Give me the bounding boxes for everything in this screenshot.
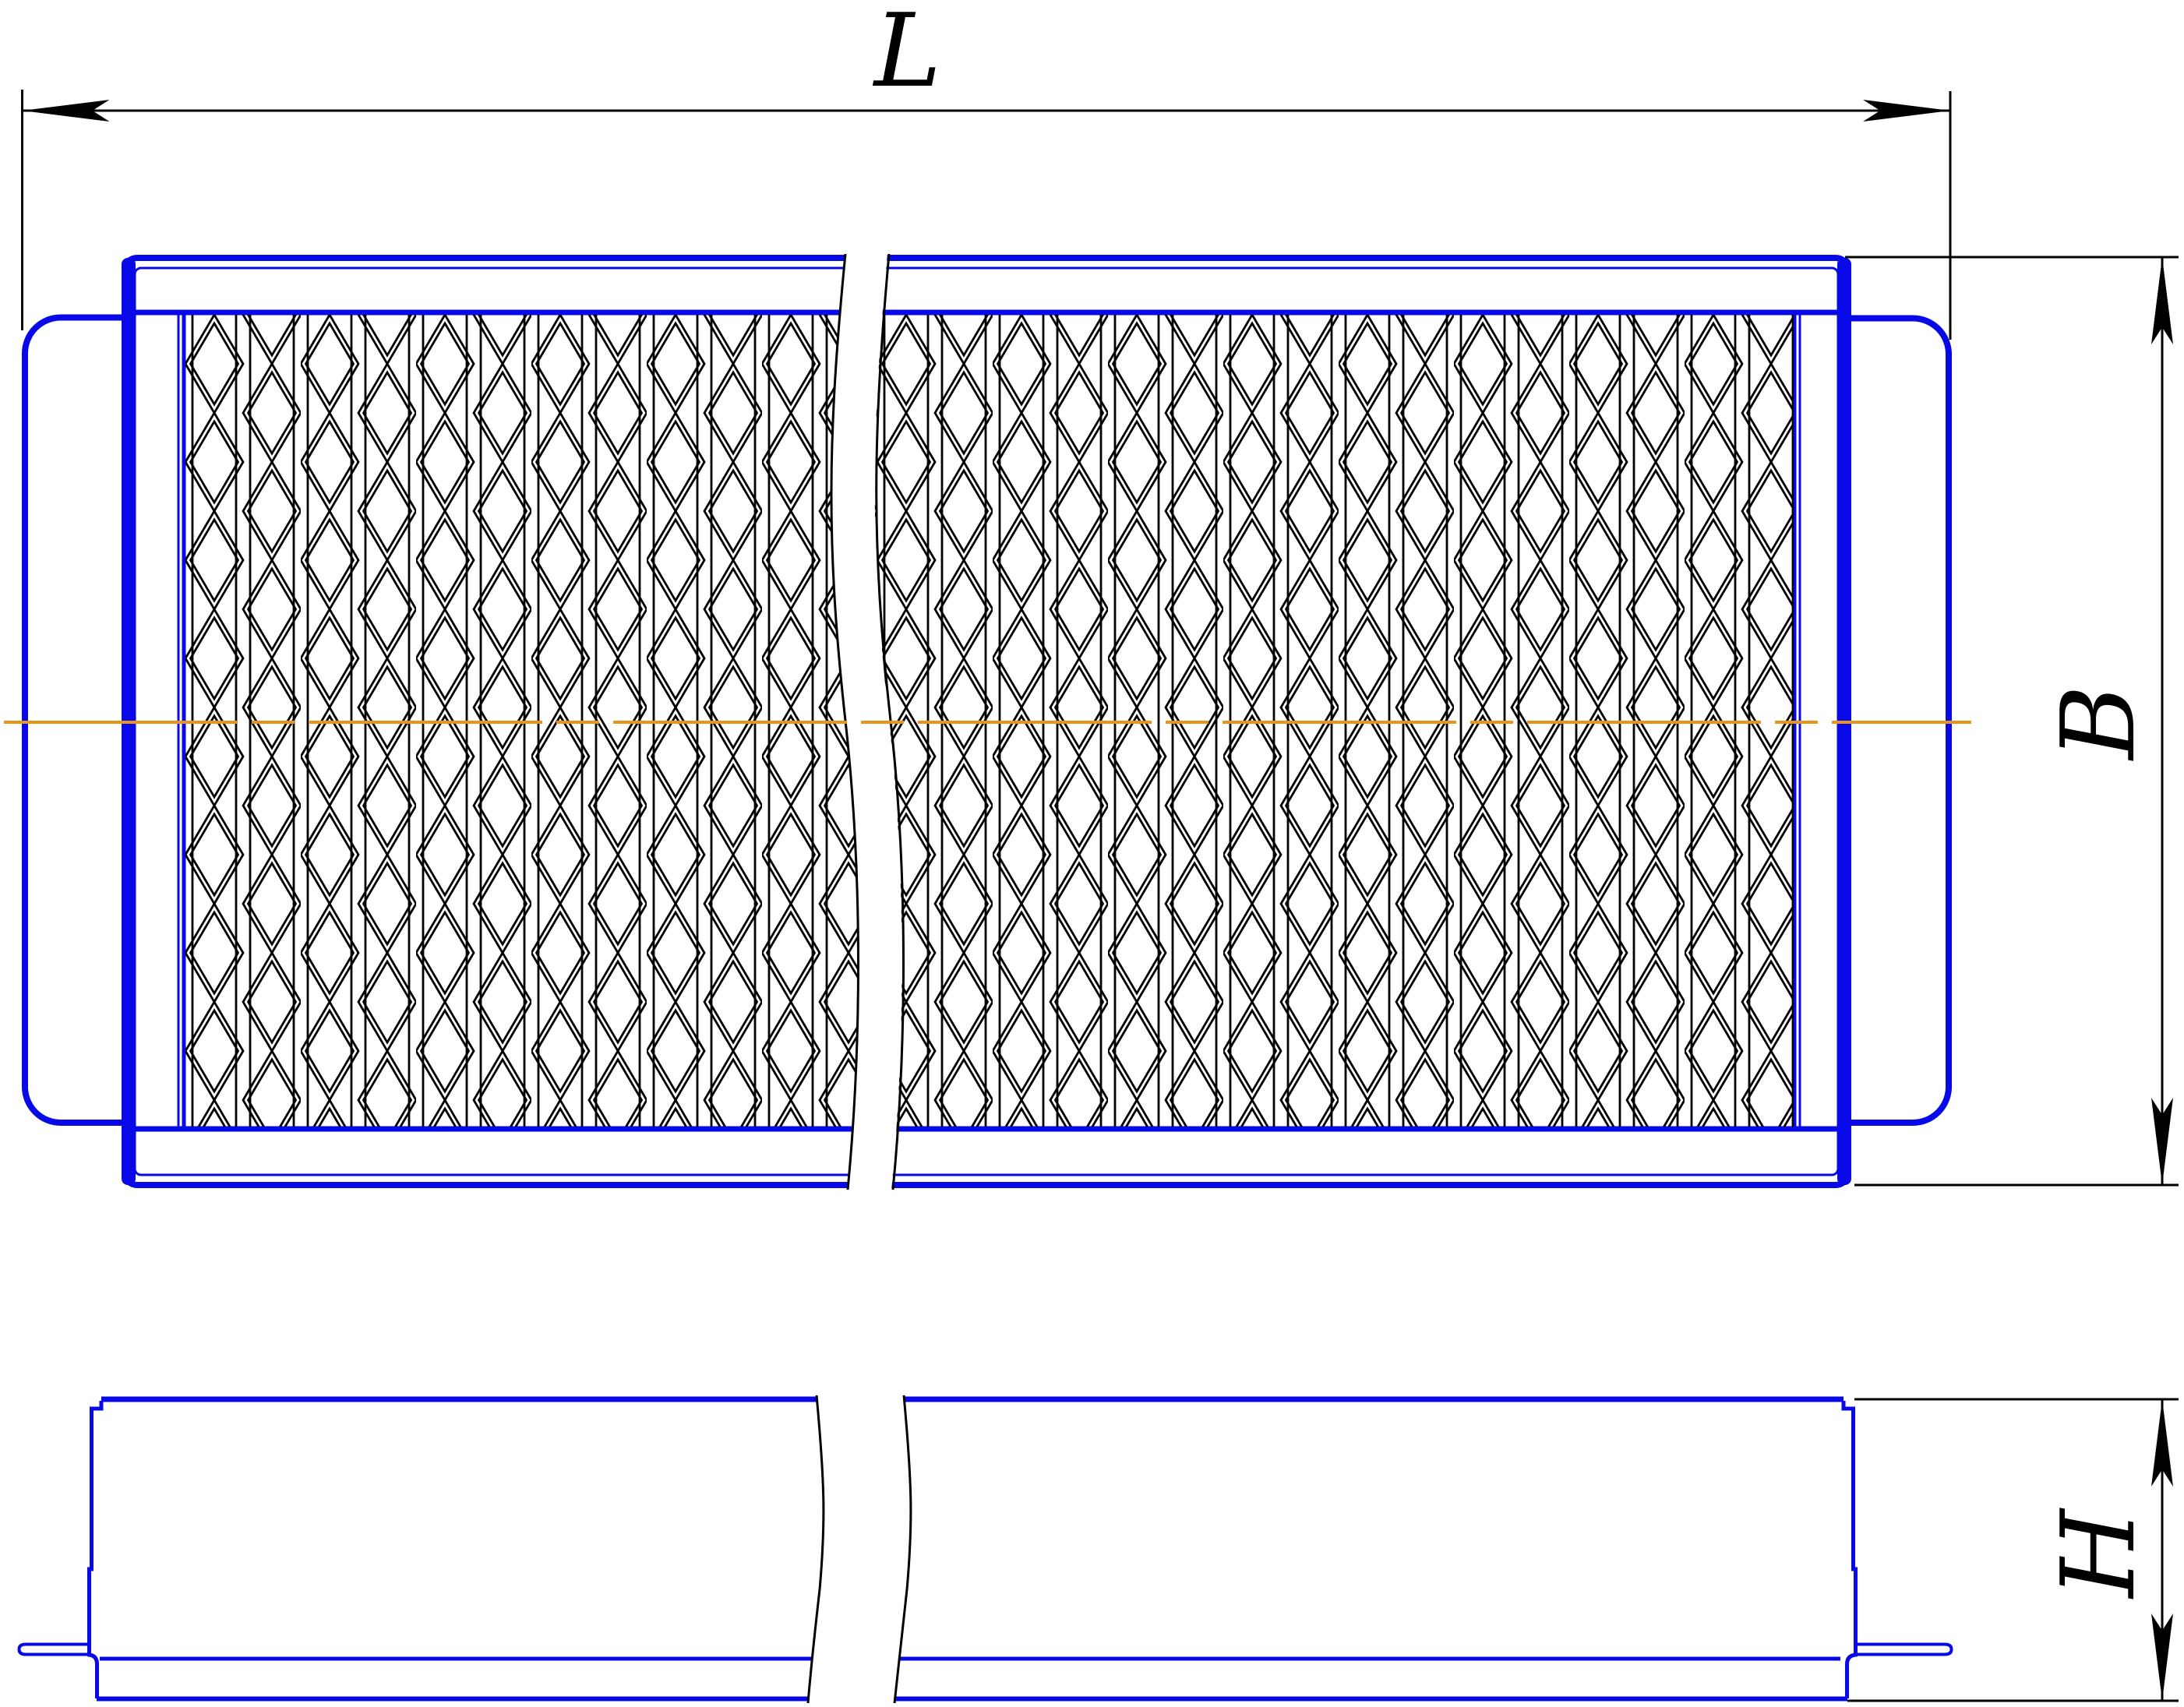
top-view bbox=[4, 253, 1971, 1190]
right-end-tab bbox=[1844, 319, 1949, 1123]
side-left-tab bbox=[19, 1645, 92, 1655]
filter-element-drawing: L B H bbox=[0, 0, 2184, 1707]
label-height: H bbox=[2039, 1508, 2158, 1599]
label-length: L bbox=[873, 0, 941, 110]
side-break-gap bbox=[809, 1395, 910, 1705]
side-right-profile bbox=[1844, 1401, 1856, 1645]
dimension-length: L bbox=[23, 0, 1951, 340]
drawing-sheet: L B H bbox=[0, 0, 2184, 1707]
side-left-step bbox=[90, 1645, 97, 1698]
label-width: B bbox=[2039, 685, 2158, 761]
side-view bbox=[19, 1395, 1952, 1705]
side-left-profile bbox=[90, 1401, 102, 1645]
side-right-tab bbox=[1854, 1645, 1952, 1655]
left-end-tab bbox=[25, 318, 129, 1123]
side-right-step bbox=[1847, 1645, 1856, 1698]
